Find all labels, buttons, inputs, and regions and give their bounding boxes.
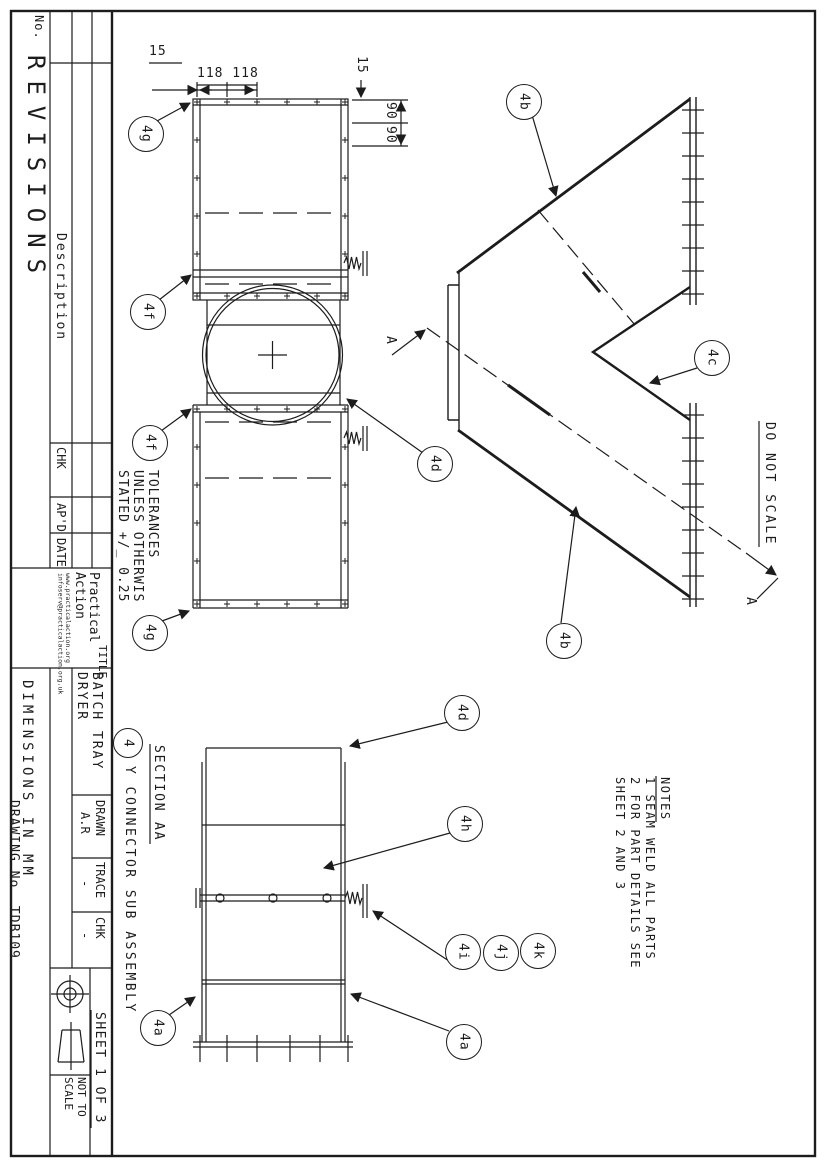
chk-label: CHK xyxy=(94,917,106,939)
revisions-description-label: Description xyxy=(54,233,67,341)
projection-symbol-icon xyxy=(51,975,89,1070)
drawing-number: DRAWING No. TDB109 xyxy=(7,800,20,959)
balloon-4g-plan-bottom: 4g xyxy=(132,615,168,651)
dim-15-right: 15 xyxy=(355,56,368,74)
drawn-label: DRAWN xyxy=(94,800,106,836)
balloon-4a-left: 4a xyxy=(140,1010,176,1046)
plan-view xyxy=(193,99,367,608)
trace-value: - xyxy=(79,880,91,887)
balloon-4d-plan: 4d xyxy=(417,446,453,482)
balloon-4a-right: 4a xyxy=(446,1024,482,1060)
balloon-4f-plan-lower: 4f xyxy=(132,425,168,461)
revisions-title: REVISIONS xyxy=(24,55,48,284)
scale-note: NOT TO SCALE xyxy=(62,1077,88,1117)
bolt-marks xyxy=(194,99,348,607)
balloon-4d-section: 4d xyxy=(444,695,480,731)
balloon-4g-plan-top: 4g xyxy=(128,116,164,152)
revisions-date-label: DATE xyxy=(55,538,67,567)
revisions-no-label: No. xyxy=(33,15,45,40)
trace-label: TRACE xyxy=(94,862,106,898)
balloon-4h: 4h xyxy=(447,806,483,842)
balloon-4k: 4k xyxy=(520,933,556,969)
balloon-4b-top: 4b xyxy=(506,84,542,120)
org-contact: www.practicalaction.org infoserv@practic… xyxy=(56,573,71,694)
balloon-assembly-number: 4 xyxy=(113,728,143,758)
dim-90-second: 90 xyxy=(384,126,397,144)
revisions-chk-label: CHK xyxy=(55,447,67,469)
dim-90-first: 90 xyxy=(384,102,397,120)
org-logo: Practical Action xyxy=(72,572,100,642)
dim-15-left: 15 xyxy=(149,45,167,58)
section-arrow-label-top: A xyxy=(384,336,397,344)
revisions-apd-label: AP'D xyxy=(55,503,67,532)
dim-118-pair: 118 118 xyxy=(197,67,259,80)
drawing-title: BATCH TRAY DRYER xyxy=(74,672,104,770)
tolerances-note: TOLERANCES UNLESS OTHERWIS STATED +/_ 0.… xyxy=(115,470,160,602)
units-note: DIMENSIONS IN MM xyxy=(20,680,34,879)
balloon-4c: 4c xyxy=(694,340,730,376)
drawing-sheet: No. REVISIONS Description CHK AP'D DATE … xyxy=(0,0,826,1169)
section-arrow-label-bottom: A xyxy=(744,597,757,605)
balloon-4b-bottom: 4b xyxy=(546,623,582,659)
drawn-value: A.R xyxy=(79,812,91,834)
dimension-lines xyxy=(152,80,408,146)
section-title: SECTION AA xyxy=(152,745,165,841)
do-not-scale-note: DO NOT SCALE xyxy=(763,422,776,546)
balloon-4i: 4i xyxy=(445,934,481,970)
notes-block: NOTES 1 SEAM WELD ALL PARTS 2 FOR PART D… xyxy=(612,777,672,969)
balloon-4j: 4j xyxy=(483,935,519,971)
assembly-title: Y CONNECTOR SUB ASSEMBLY xyxy=(123,766,136,1014)
sheet-number: SHEET 1 OF 3 xyxy=(93,1012,106,1124)
section-aa-view xyxy=(193,748,367,1062)
balloon-4f-plan-upper: 4f xyxy=(130,294,166,330)
chk-value: - xyxy=(79,932,91,939)
